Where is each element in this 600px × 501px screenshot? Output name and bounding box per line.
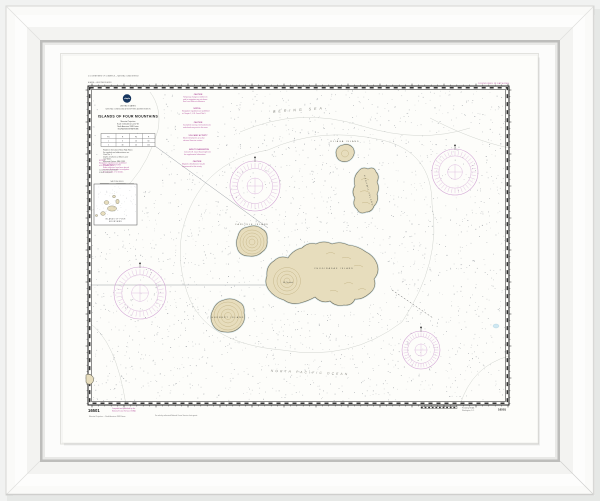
sounding-dot <box>500 140 501 141</box>
sounding-dot <box>471 197 472 198</box>
sounding-dot <box>162 387 163 388</box>
sounding-dot <box>132 305 133 306</box>
sounding-dot <box>191 373 192 374</box>
sounding-dot <box>440 91 441 92</box>
sounding-dot <box>485 272 486 273</box>
sounding-dot <box>456 118 457 119</box>
sounding-dot <box>452 301 453 302</box>
sounding-dot <box>496 178 497 179</box>
sounding-dot <box>502 154 503 155</box>
sounding-dot <box>500 148 501 149</box>
sounding-dot <box>151 272 152 273</box>
note-title: CAUTION <box>193 160 202 163</box>
inset-dot <box>130 191 131 192</box>
sounding-dot <box>265 150 266 151</box>
sounding-dot <box>395 106 396 107</box>
sounding-dot <box>181 275 182 276</box>
sounding-dot <box>93 258 94 259</box>
sounding-dot <box>435 259 436 260</box>
sounding-dot <box>145 196 146 197</box>
sounding-dot <box>170 232 171 233</box>
sounding-dot <box>203 263 204 264</box>
sounding-dot <box>472 180 473 181</box>
sounding-dot <box>249 399 250 400</box>
sounding-dot <box>477 268 478 269</box>
sounding-dot <box>254 214 255 215</box>
sounding-dot <box>400 121 401 122</box>
sounding-dot <box>470 297 471 298</box>
inset-dot <box>101 192 102 193</box>
sounding-dot <box>239 133 240 134</box>
sounding-dot <box>291 337 292 338</box>
sounding-dot <box>330 209 331 210</box>
sounding-dot <box>418 288 419 289</box>
sounding-dot <box>126 368 127 369</box>
sounding-dot <box>273 306 274 307</box>
sounding-dot <box>162 164 163 165</box>
sounding-dot <box>286 250 287 251</box>
sounding-dot <box>131 366 132 367</box>
sounding-dot <box>338 324 339 325</box>
sounding-dot <box>285 367 286 368</box>
sounding-dot <box>323 333 324 334</box>
sounding-dot <box>232 172 233 173</box>
sounding-dot <box>263 399 264 400</box>
sounding-dot <box>465 218 466 219</box>
sounding-dot <box>468 279 469 280</box>
sounding-dot <box>175 183 176 184</box>
sounding-dot <box>300 376 301 377</box>
sounding-dot <box>263 346 264 347</box>
sounding-dot <box>151 324 152 325</box>
sounding-dot <box>134 247 135 248</box>
sounding-dot <box>488 372 489 373</box>
sounding-dot <box>260 163 261 164</box>
sounding-dot <box>418 280 419 281</box>
sounding-dot <box>420 302 421 303</box>
sounding-dot <box>220 341 221 342</box>
sounding-dot <box>490 270 491 271</box>
sounding-dot <box>318 132 319 133</box>
sounding-dot <box>383 240 384 241</box>
sounding-dot <box>503 178 504 179</box>
sounding-dot <box>471 347 472 348</box>
sounding-dot <box>118 249 119 250</box>
sounding-dot <box>370 380 371 381</box>
sounding-dot <box>350 359 351 360</box>
sounding-dot <box>465 379 466 380</box>
sounding-dot <box>186 302 187 303</box>
sounding-dot <box>375 118 376 119</box>
sounding-dot <box>305 379 306 380</box>
sounding-dot <box>388 261 389 262</box>
sounding-dot <box>450 219 451 220</box>
sounding-dot <box>446 387 447 388</box>
sounding-dot <box>195 311 196 312</box>
sounding-dot <box>477 371 478 372</box>
sounding-dot <box>288 100 289 101</box>
sounding-dot <box>295 181 296 182</box>
sounding-dot <box>260 382 261 383</box>
sounding-dot <box>358 373 359 374</box>
sounding-dot <box>107 281 108 282</box>
sounding-dot <box>206 258 207 259</box>
sounding-dot <box>300 239 301 240</box>
sounding-dot <box>482 225 483 226</box>
sounding-dot <box>495 288 496 289</box>
sounding-dot <box>288 129 289 130</box>
sounding-dot <box>383 253 384 254</box>
sounding-dot <box>351 93 352 94</box>
sounding-dot <box>285 237 286 238</box>
sounding-dot <box>164 234 165 235</box>
sounding-dot <box>413 249 414 250</box>
sounding-dot <box>262 366 263 367</box>
sounding-dot <box>143 358 144 359</box>
sounding-dot <box>468 353 469 354</box>
sounding-dot <box>383 383 384 384</box>
sounding-dot <box>245 282 246 283</box>
sounding-dot <box>504 389 505 390</box>
sounding-dot <box>437 347 438 348</box>
sounding-dot <box>422 291 423 292</box>
sounding-dot <box>162 152 163 153</box>
sounding-dot <box>154 375 155 376</box>
sounding-dot <box>298 311 299 312</box>
sounding-dot <box>128 229 129 230</box>
sounding-dot <box>347 222 348 223</box>
sounding-dot <box>261 370 262 371</box>
sounding-dot <box>255 209 256 210</box>
sounding-dot <box>193 358 194 359</box>
sounding-dot <box>258 280 259 281</box>
sounding-dot <box>110 253 111 254</box>
sounding-dot <box>236 134 237 135</box>
sounding-dot <box>273 330 274 331</box>
sounding-dot <box>102 349 103 350</box>
sounding-dot <box>273 359 274 360</box>
sounding-dot <box>499 194 500 195</box>
sounding-dot <box>430 370 431 371</box>
sounding-dot <box>135 321 136 322</box>
sounding-dot <box>174 324 175 325</box>
sounding-dot <box>209 213 210 214</box>
sounding-dot <box>266 357 267 358</box>
sounding-dot <box>179 381 180 382</box>
sounding-dot <box>382 141 383 142</box>
inset-dot <box>99 187 100 188</box>
sounding-dot <box>255 120 256 121</box>
sounding-dot <box>97 398 98 399</box>
sounding-dot <box>482 312 483 313</box>
sounding-dot <box>408 251 409 252</box>
sounding-dot <box>407 100 408 101</box>
sounding-dot <box>320 192 321 193</box>
bottom-mini-scale <box>421 407 457 409</box>
sounding-dot <box>105 259 106 260</box>
sounding-dot <box>304 311 305 312</box>
sounding-dot <box>479 337 480 338</box>
sounding-dot <box>225 285 226 286</box>
note-title: CAUTION <box>194 121 203 124</box>
sounding-dot <box>175 129 176 130</box>
sounding-dot <box>408 116 409 117</box>
sounding-dot <box>188 262 189 263</box>
sounding-dot <box>123 378 124 379</box>
sounding-dot <box>406 321 407 322</box>
sounding-dot <box>419 224 420 225</box>
sounding-dot <box>284 379 285 380</box>
sounding-dot <box>170 202 171 203</box>
sounding-dot <box>285 245 286 246</box>
sounding-dot <box>411 236 412 237</box>
sounding-dot <box>126 381 127 382</box>
sounding-dot <box>417 310 418 311</box>
sounding-dot <box>387 103 388 104</box>
sounding-dot <box>305 338 306 339</box>
sounding-dot <box>244 343 245 344</box>
sounding-dot <box>449 95 450 96</box>
sounding-dot <box>381 348 382 349</box>
sounding-dot <box>427 205 428 206</box>
sounding-dot <box>222 251 223 252</box>
sounding-dot <box>451 317 452 318</box>
sounding-dot <box>253 376 254 377</box>
sounding-dot <box>437 323 438 324</box>
sounding-dot <box>326 163 327 164</box>
sounding-dot <box>334 400 335 401</box>
sounding-dot <box>458 254 459 255</box>
sounding-dot <box>140 280 141 281</box>
sounding-dot <box>474 338 475 339</box>
sounding-dot <box>500 188 501 189</box>
sounding-dot <box>304 197 305 198</box>
sounding-dot <box>348 133 349 134</box>
sounding-dot <box>237 342 238 343</box>
sounding-dot <box>356 116 357 117</box>
sounding-dot <box>401 321 402 322</box>
sounding-dot <box>447 371 448 372</box>
note-title: VOLCANIC ACTIVITY <box>189 134 209 137</box>
sounding-dot <box>344 222 345 223</box>
sounding-dot <box>93 144 94 145</box>
sounding-dot <box>217 202 218 203</box>
sounding-dot <box>273 170 274 171</box>
sounding-dot <box>207 191 208 192</box>
framed-nautical-chart: UNITED STATES NATIONAL OCEANIC AND ATMOS… <box>0 0 600 501</box>
sounding-dot <box>316 91 317 92</box>
sounding-dot <box>337 139 338 140</box>
sounding-dot <box>420 323 421 324</box>
sounding-dot <box>401 211 402 212</box>
shoal-patch <box>493 324 499 328</box>
sounding-dot <box>425 213 426 214</box>
sounding-dot <box>484 366 485 367</box>
sounding-dot <box>258 344 259 345</box>
sounding-dot <box>285 216 286 217</box>
sounding-dot <box>437 222 438 223</box>
sounding-dot <box>437 337 438 338</box>
sounding-dot <box>114 357 115 358</box>
sounding-dot <box>261 343 262 344</box>
sounding-dot <box>384 178 385 179</box>
sounding-dot <box>129 382 130 383</box>
sounding-dot <box>188 319 189 320</box>
sounding-dot <box>348 336 349 337</box>
sounding-dot <box>171 135 172 136</box>
sounding-dot <box>353 122 354 123</box>
sounding-dot <box>162 253 163 254</box>
sounding-dot <box>462 113 463 114</box>
sounding-dot <box>397 155 398 156</box>
sounding-dot <box>394 367 395 368</box>
sounding-dot <box>252 390 253 391</box>
sounding-dot <box>313 182 314 183</box>
sounding-dot <box>306 213 307 214</box>
sounding-dot <box>462 296 463 297</box>
sounding-dot <box>201 214 202 215</box>
sounding-dot <box>431 154 432 155</box>
sounding-dot <box>228 389 229 390</box>
sounding-dot <box>145 317 146 318</box>
sounding-dot <box>159 395 160 396</box>
sounding-dot <box>463 164 464 165</box>
sounding-dot <box>96 154 97 155</box>
sounding-dot <box>486 343 487 344</box>
sounding-dot <box>136 239 137 240</box>
sounding-dot <box>291 177 292 178</box>
inset-dot <box>116 204 117 205</box>
sounding-dot <box>454 294 455 295</box>
sounding-dot <box>498 203 499 204</box>
sounding-dot <box>129 336 130 337</box>
sounding-dot <box>234 119 235 120</box>
sounding-dot <box>309 331 310 332</box>
sounding-dot <box>450 357 451 358</box>
inset-dot <box>98 194 99 195</box>
sounding-dot <box>335 364 336 365</box>
sounding-dot <box>239 109 240 110</box>
sounding-dot <box>479 182 480 183</box>
sounding-dot <box>487 274 488 275</box>
sounding-dot <box>414 263 415 264</box>
sounding-dot <box>157 300 158 301</box>
sounding-dot <box>290 377 291 378</box>
sounding-dot <box>390 244 391 245</box>
sounding-dot <box>253 91 254 92</box>
sounding-dot <box>456 377 457 378</box>
sounding-dot <box>269 118 270 119</box>
sounding-dot <box>462 247 463 248</box>
sounding-dot <box>414 246 415 247</box>
sounding-dot <box>475 272 476 273</box>
sounding-dot <box>425 254 426 255</box>
sounding-dot <box>150 243 151 244</box>
sounding-dot <box>251 122 252 123</box>
sounding-dot <box>475 302 476 303</box>
sounding-dot <box>267 124 268 125</box>
sounding-dot <box>493 270 494 271</box>
sounding-dot <box>293 176 294 177</box>
sounding-dot <box>281 320 282 321</box>
sounding-dot <box>162 304 163 305</box>
sounding-dot <box>422 255 423 256</box>
sounding-dot <box>341 354 342 355</box>
sounding-dot <box>495 150 496 151</box>
sounding-dot <box>287 342 288 343</box>
sounding-dot <box>496 235 497 236</box>
sounding-dot <box>155 220 156 221</box>
sounding-dot <box>264 294 265 295</box>
sounding-dot <box>239 295 240 296</box>
sounding-dot <box>320 343 321 344</box>
sounding-dot <box>330 340 331 341</box>
sounding-dot <box>282 254 283 255</box>
sounding-dot <box>369 122 370 123</box>
sounding-dot <box>237 172 238 173</box>
sounding-dot <box>430 100 431 101</box>
sounding-dot <box>229 400 230 401</box>
inset-islet <box>107 206 116 211</box>
sounding-dot <box>374 242 375 243</box>
sounding-dot <box>462 105 463 106</box>
sounding-dot <box>390 319 391 320</box>
sounding-dot <box>490 167 491 168</box>
sounding-dot <box>94 378 95 379</box>
sounding-dot <box>265 96 266 97</box>
sounding-dot <box>349 172 350 173</box>
sounding-dot <box>430 267 431 268</box>
inset-dot <box>135 211 136 212</box>
sounding-dot <box>255 343 256 344</box>
sounding-dot <box>438 319 439 320</box>
sounding-dot <box>131 300 132 301</box>
sounding-dot <box>383 341 384 342</box>
sounding-dot <box>407 341 408 342</box>
sounding-dot <box>174 149 175 150</box>
sounding-dot <box>100 256 101 257</box>
sounding-dot <box>377 228 378 229</box>
sounding-dot <box>315 120 316 121</box>
sounding-dot <box>491 107 492 108</box>
sounding-dot <box>286 190 287 191</box>
sounding-dot <box>222 354 223 355</box>
sounding-dot <box>346 95 347 96</box>
sounding-dot <box>263 321 264 322</box>
sounding-dot <box>169 203 170 204</box>
sounding-dot <box>278 334 279 335</box>
sounding-dot <box>335 164 336 165</box>
sounding-dot <box>99 271 100 272</box>
sounding-dot <box>149 220 150 221</box>
sounding-dot <box>166 309 167 310</box>
sounding-dot <box>430 270 431 271</box>
sounding-dot <box>97 321 98 322</box>
sounding-dot <box>199 182 200 183</box>
inset-dot <box>116 208 117 209</box>
sounding-dot <box>170 393 171 394</box>
sounding-dot <box>469 365 470 366</box>
sounding-dot <box>97 109 98 110</box>
sounding-dot <box>467 366 468 367</box>
sounding-dot <box>315 134 316 135</box>
sounding-dot <box>113 312 114 313</box>
sounding-dot <box>471 345 472 346</box>
sounding-dot <box>203 393 204 394</box>
sounding-dot <box>234 286 235 287</box>
sounding-dot <box>443 127 444 128</box>
sounding-dot <box>145 259 146 260</box>
